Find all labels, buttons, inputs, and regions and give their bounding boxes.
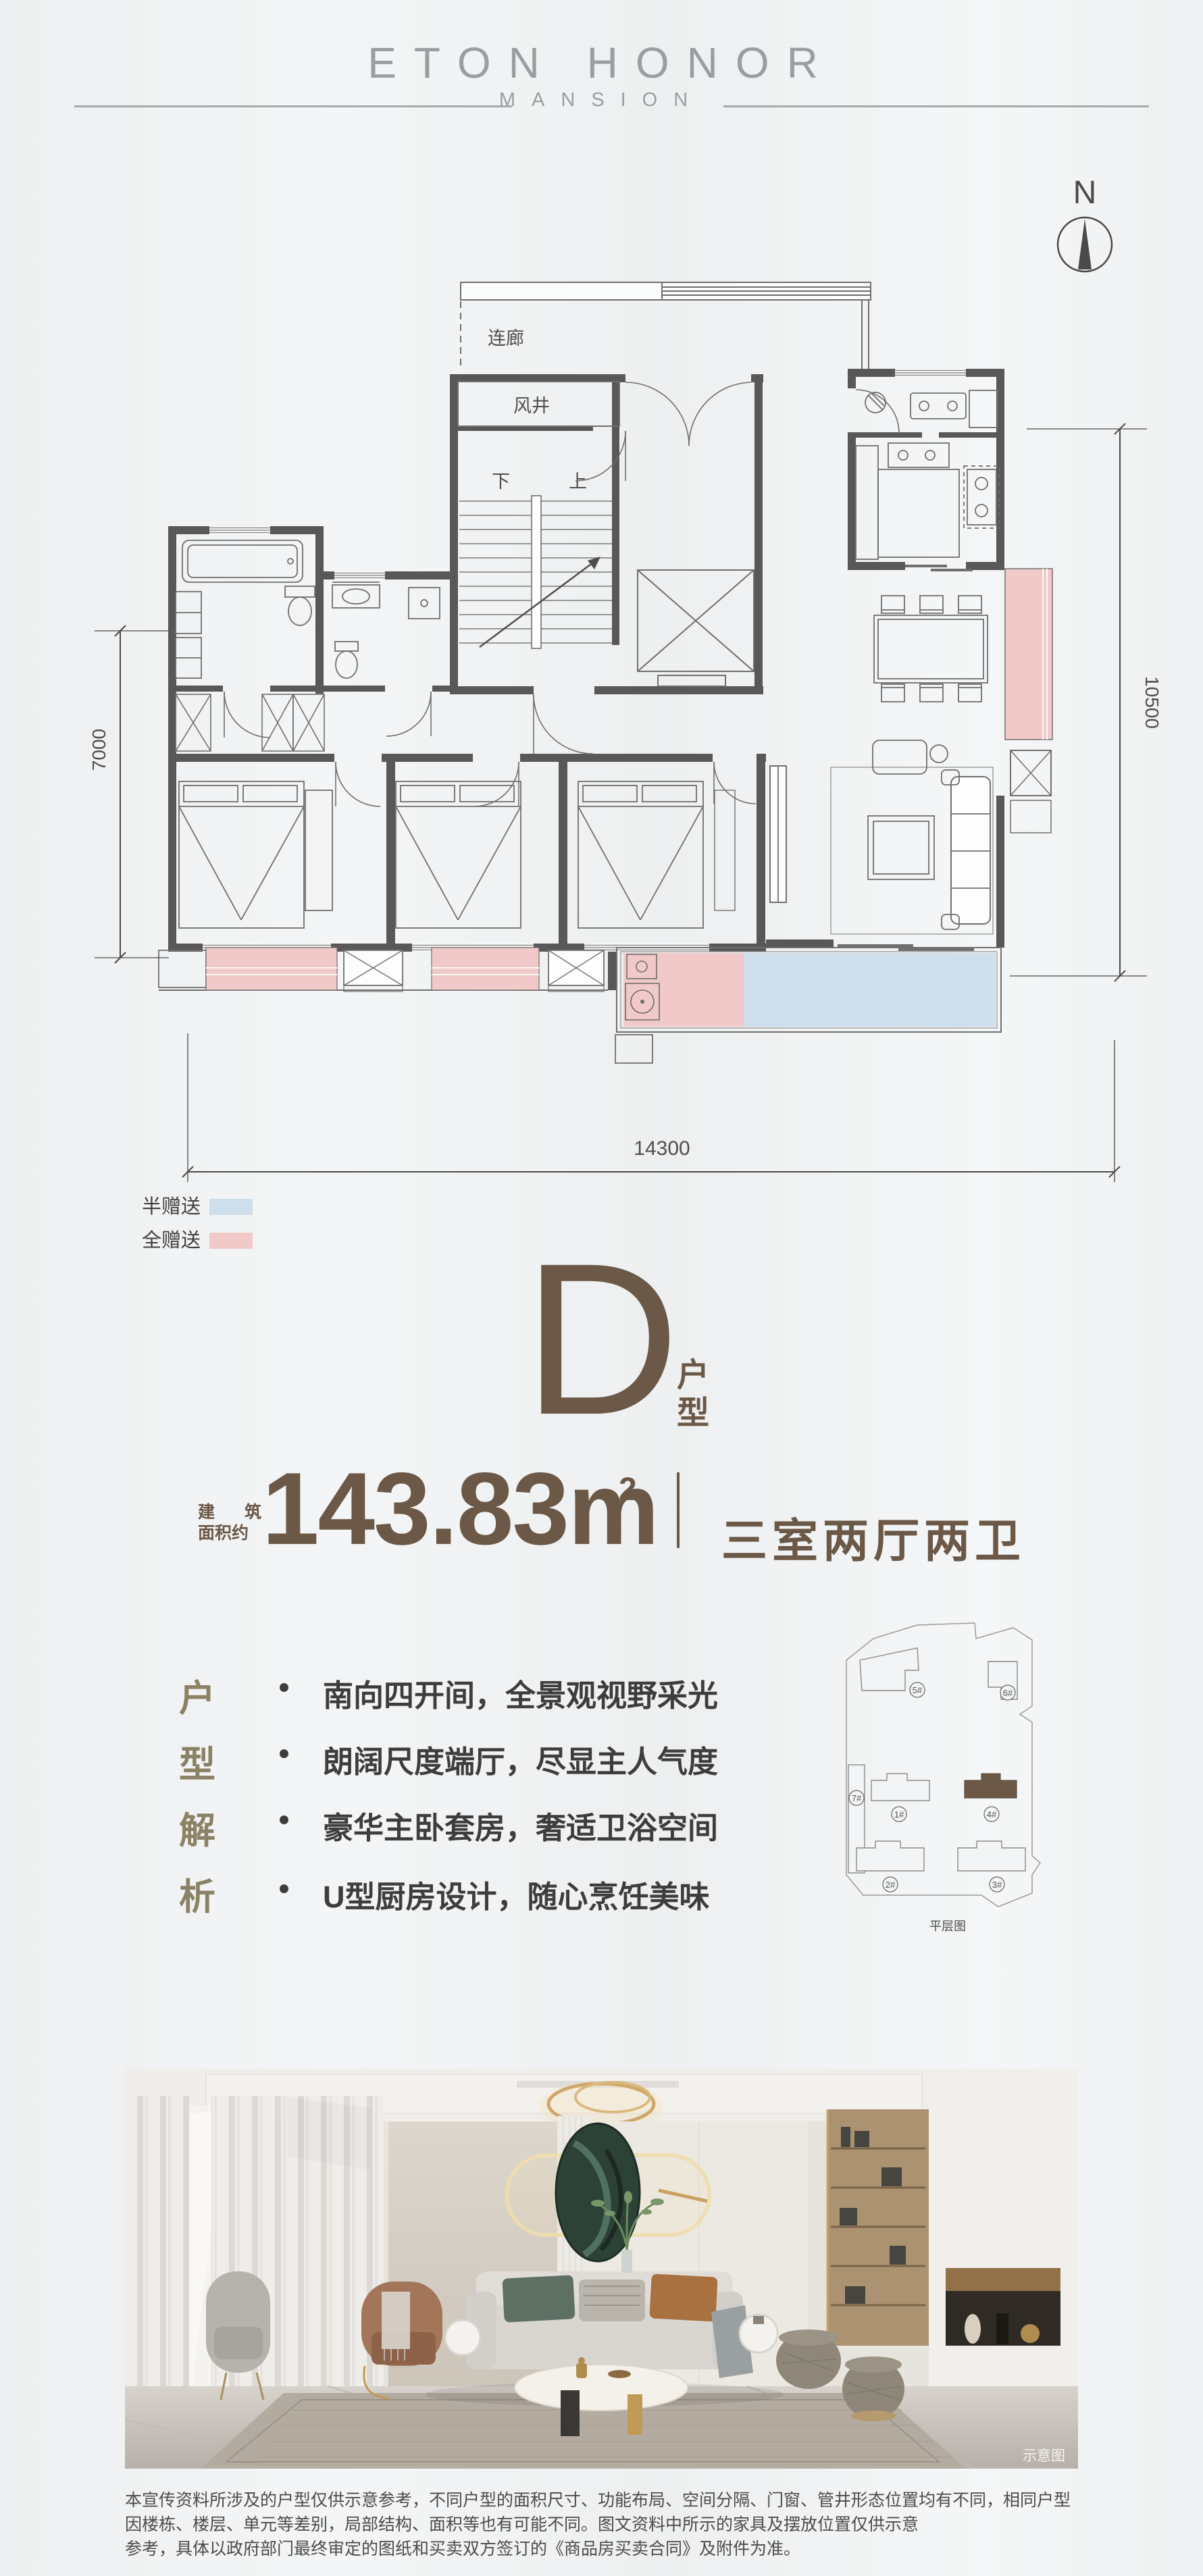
bedroom-beds (179, 781, 735, 928)
unit-letter: D (523, 1231, 680, 1447)
dining-set (874, 596, 988, 702)
dim-left-value: 7000 (88, 729, 109, 771)
living-room (770, 740, 993, 934)
walls (168, 369, 1004, 990)
svg-text:5#: 5# (913, 1685, 923, 1695)
photo-watermark: 示意图 (1023, 2448, 1065, 2464)
bullet-text: U型厨房设计，随心烹饪美味 (323, 1880, 710, 1914)
disclaimer: 本宣传资料所涉及的户型仅供示意参考，不同户型的面积尺寸、功能布局、空间分隔、门窗… (125, 2488, 1084, 2561)
header-rule-left (74, 105, 512, 107)
area-prefix-char: 建 (198, 1502, 215, 1523)
dimension-bottom (182, 1033, 1120, 1182)
analysis-title-char-2: 型 (173, 1734, 222, 1788)
corridor-label: 连廊 (488, 328, 524, 349)
dim-bottom-value: 14300 (634, 1137, 690, 1160)
gift-strip-right (1005, 569, 1052, 833)
dimension-left (95, 625, 169, 963)
disclaimer-line-2: 参考，具体以政府部门最终审定的图纸和买卖双方签订的《商品房买卖合同》及附件为准。 (125, 2537, 1084, 2561)
master-bathroom (176, 540, 315, 678)
bullet-dot (280, 1884, 288, 1893)
analysis-bullet-3: 豪华主卧套房，奢适卫浴空间 (323, 1803, 836, 1847)
svg-text:3#: 3# (992, 1880, 1002, 1890)
balcony-left (159, 948, 608, 991)
bullet-text: 朗阔尺度端厅，尽显主人气度 (323, 1745, 718, 1779)
svg-text:6#: 6# (1003, 1688, 1013, 1698)
compass-north-label: N (1054, 177, 1116, 209)
analysis-title-char-3: 解 (173, 1801, 222, 1854)
header-rule-right (723, 105, 1149, 107)
bullet-dot (280, 1749, 288, 1758)
compass-icon (1056, 215, 1114, 273)
svg-text:4#: 4# (987, 1809, 997, 1820)
svg-text:1#: 1# (894, 1809, 904, 1820)
air-shaft-room: 风井 (458, 382, 619, 426)
legend-item-full-gift: 全赠送 (142, 1229, 201, 1252)
area-prefix: 建 筑 面积约 (198, 1502, 261, 1544)
legend-swatch-pink (209, 1233, 253, 1249)
area-divider (677, 1472, 680, 1548)
bullet-dot (280, 1815, 288, 1824)
site-buildings (848, 1648, 1025, 1873)
interior-photo-art: 示意图 (125, 2069, 1078, 2469)
interior-photo: 示意图 (125, 2069, 1078, 2469)
analysis-title-char-4: 析 (173, 1867, 222, 1920)
svg-text:7#: 7# (852, 1793, 862, 1803)
bullet-text: 南向四开间，全景观视野采光 (323, 1678, 718, 1713)
brand-title: ETON HONOR (0, 38, 1203, 88)
analysis-bullet-2: 朗阔尺度端厅，尽显主人气度 (323, 1737, 836, 1781)
staircase (459, 496, 612, 648)
compass: N (1054, 177, 1116, 273)
analysis-bullet-1: 南向四开间，全景观视野采光 (323, 1671, 836, 1715)
legend-label: 半赠送 (142, 1196, 201, 1218)
wardrobes (176, 694, 324, 751)
legend-swatch-blue (209, 1199, 253, 1215)
air-shaft-label: 风井 (513, 396, 550, 416)
stair-up-label: 上 (569, 471, 587, 492)
analysis-bullet-4: U型厨房设计，随心烹饪美味 (323, 1872, 836, 1916)
area-prefix-char: 筑 (245, 1502, 261, 1523)
dim-right-value: 10500 (1142, 676, 1162, 729)
stair-arrow (588, 557, 600, 569)
legend-label: 全赠送 (142, 1230, 201, 1252)
svg-text:2#: 2# (886, 1880, 896, 1890)
poster-root: ETON HONOR MANSION N 连廊 (0, 0, 1203, 2576)
area-value: 143.83m (262, 1458, 658, 1560)
room-configuration: 三室两厅两卫 (721, 1503, 1025, 1570)
bullet-text: 豪华主卧套房，奢适卫浴空间 (323, 1811, 718, 1845)
area-superscript: 2 (619, 1471, 637, 1508)
analysis-title-char-1: 户 (173, 1668, 222, 1722)
disclaimer-line-1: 本宣传资料所涉及的户型仅供示意参考，不同户型的面积尺寸、功能布局、空间分隔、门窗… (125, 2488, 1084, 2537)
second-bathroom (332, 582, 440, 678)
laundry-bath (865, 390, 998, 428)
doors (224, 382, 899, 806)
brand-subtitle: MANSION (0, 89, 1203, 111)
site-plan: 5# 6# 7# 1# 4# 2# 3# 平层图 (836, 1620, 1059, 1944)
kitchen (856, 443, 1000, 570)
stair-down-label: 下 (492, 471, 510, 492)
elevator (638, 570, 754, 686)
bullet-dot (280, 1683, 288, 1692)
floor-plan: 连廊 (68, 277, 1175, 1222)
balcony-south (615, 946, 1001, 1063)
legend-item-half-gift: 半赠送 (142, 1195, 201, 1218)
area-prefix-line2: 面积约 (198, 1523, 261, 1544)
unit-type-char-2: 型 (675, 1386, 711, 1433)
site-plan-caption: 平层图 (929, 1920, 966, 1933)
site-building-4-highlight (965, 1774, 1017, 1798)
